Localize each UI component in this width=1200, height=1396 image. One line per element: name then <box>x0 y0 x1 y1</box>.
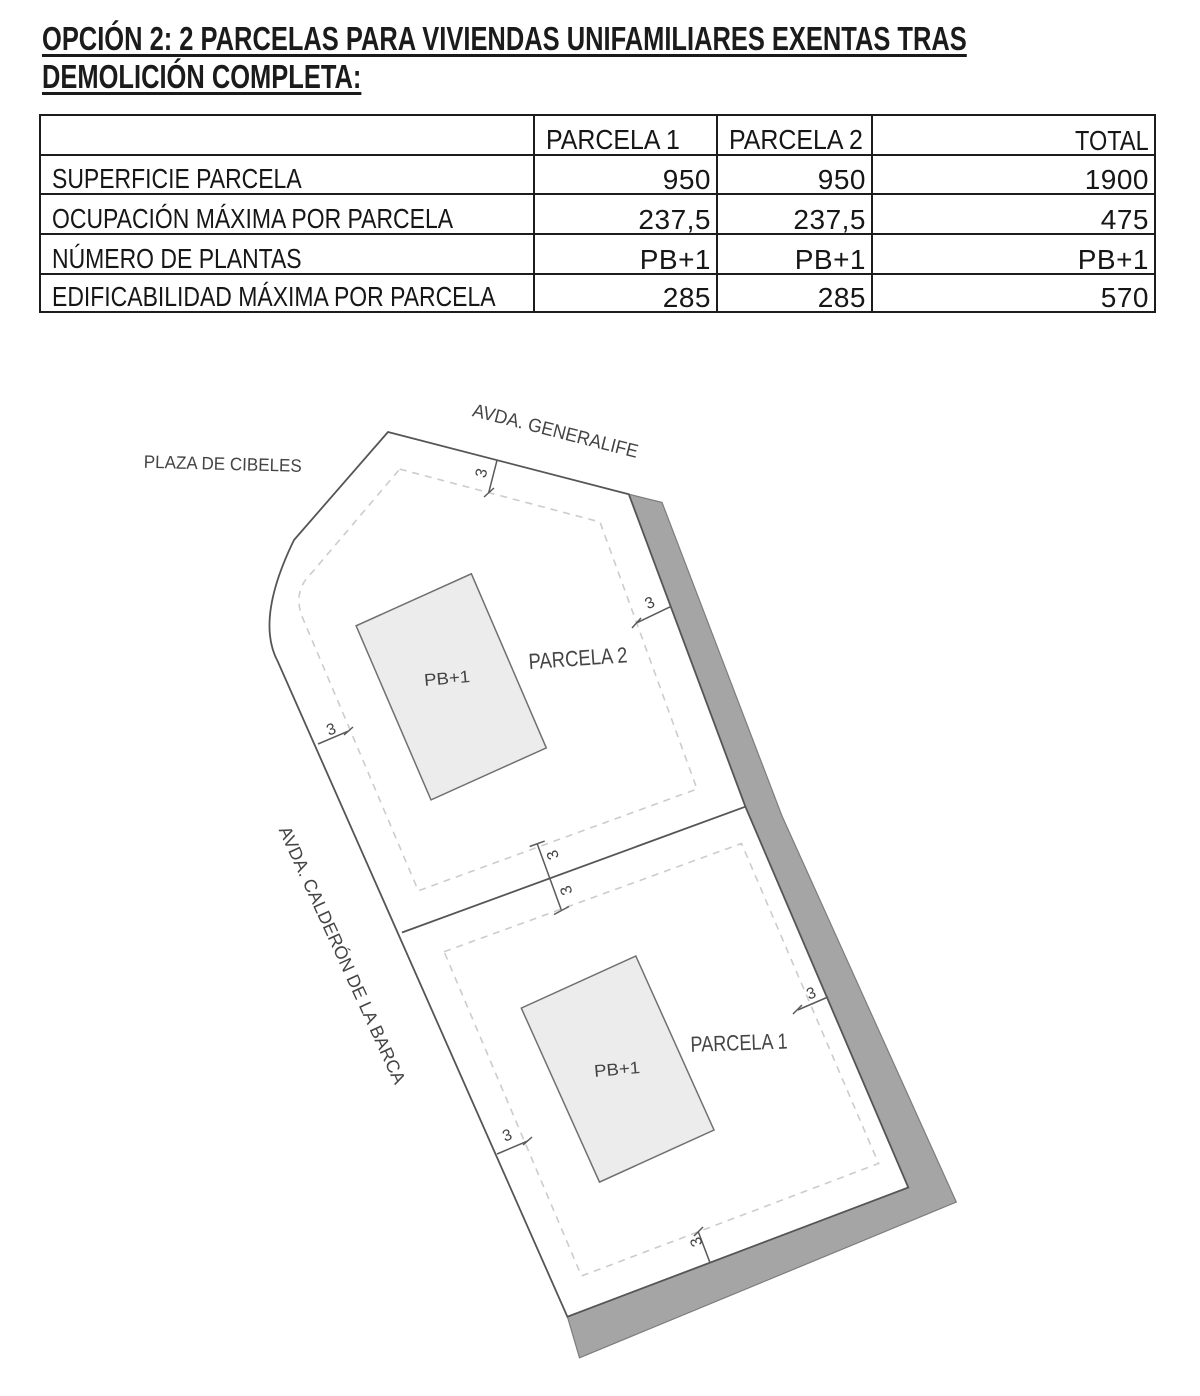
svg-text:PB+1: PB+1 <box>423 667 470 690</box>
svg-text:3: 3 <box>324 720 338 739</box>
svg-text:3: 3 <box>473 467 492 480</box>
svg-text:AVDA. GENERALIFE: AVDA. GENERALIFE <box>470 400 640 462</box>
svg-text:3: 3 <box>500 1126 514 1145</box>
svg-text:PLAZA DE CIBELES: PLAZA DE CIBELES <box>144 452 302 476</box>
svg-text:PARCELA 2: PARCELA 2 <box>528 642 629 674</box>
svg-text:AVDA. CALDERÓN DE LA BARCA: AVDA. CALDERÓN DE LA BARCA <box>275 823 411 1087</box>
svg-text:3: 3 <box>804 984 818 1003</box>
svg-text:3: 3 <box>642 594 657 613</box>
svg-text:PARCELA 1: PARCELA 1 <box>690 1029 788 1057</box>
svg-text:3: 3 <box>544 847 563 861</box>
svg-text:PB+1: PB+1 <box>593 1058 640 1081</box>
svg-text:3: 3 <box>557 883 576 897</box>
